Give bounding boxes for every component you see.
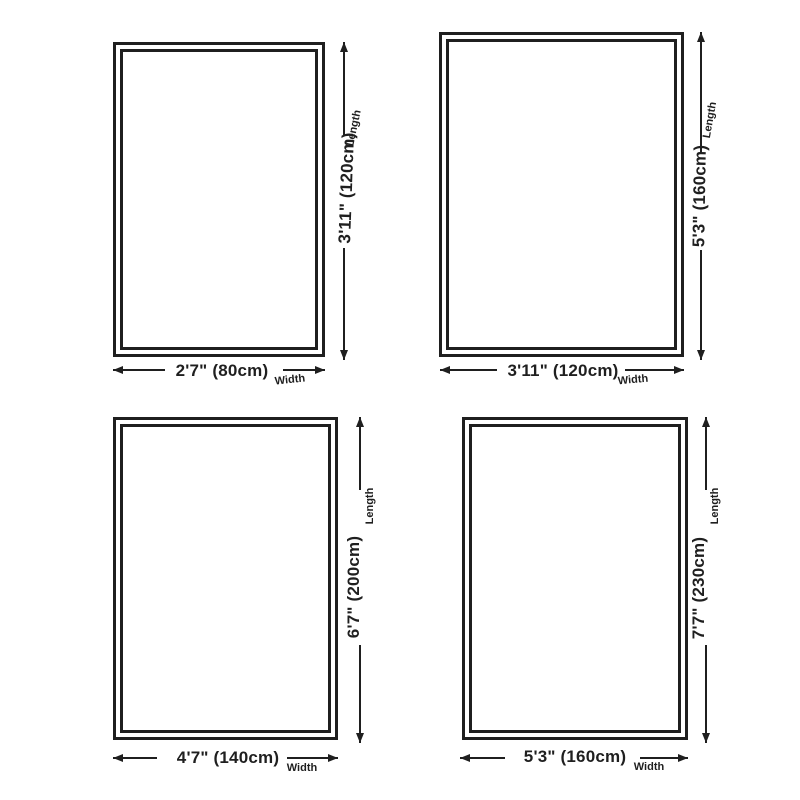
length-label: Length bbox=[364, 476, 376, 536]
width-arrow-left-icon bbox=[460, 757, 505, 759]
rug-inner-outline bbox=[120, 49, 318, 350]
length-dimension: 7'7" (230cm) bbox=[689, 518, 709, 658]
size-panel-140x200: Length 6'7" (200cm) 4'7" (140cm) Width bbox=[0, 400, 400, 800]
length-dimension: 5'3" (160cm) bbox=[689, 126, 711, 266]
length-dimension: 6'7" (200cm) bbox=[344, 517, 364, 657]
rug-inner-outline bbox=[469, 424, 681, 733]
width-arrow-right-icon bbox=[625, 369, 684, 371]
length-arrow-up-icon bbox=[359, 417, 361, 490]
length-dimension: 3'11" (120cm) bbox=[335, 118, 360, 259]
rug-outline bbox=[113, 417, 338, 740]
size-panel-160x230: Length 7'7" (230cm) 5'3" (160cm) Width bbox=[400, 400, 800, 800]
width-arrow-right-icon bbox=[640, 757, 688, 759]
size-panel-120x160: Length 5'3" (160cm) 3'11" (120cm) Width bbox=[400, 0, 800, 400]
width-arrow-left-icon bbox=[440, 369, 497, 371]
length-arrow-up-icon bbox=[705, 417, 707, 490]
rug-outline bbox=[113, 42, 325, 357]
rug-inner-outline bbox=[446, 39, 677, 350]
length-arrow-down-icon bbox=[700, 250, 702, 360]
length-arrow-down-icon bbox=[343, 248, 345, 360]
width-label: Width bbox=[619, 761, 679, 773]
length-arrow-down-icon bbox=[705, 645, 707, 743]
rug-inner-outline bbox=[120, 424, 331, 733]
rug-outline bbox=[462, 417, 688, 740]
rug-size-diagram: { "page": { "background": "#ffffff", "in… bbox=[0, 0, 800, 800]
width-arrow-left-icon bbox=[113, 757, 157, 759]
rug-outline bbox=[439, 32, 684, 357]
length-label: Length bbox=[709, 476, 721, 536]
width-label: Width bbox=[272, 762, 332, 774]
size-panel-80x120: Length 3'11" (120cm) 2'7" (80cm) Width bbox=[0, 0, 400, 400]
length-arrow-down-icon bbox=[359, 645, 361, 743]
